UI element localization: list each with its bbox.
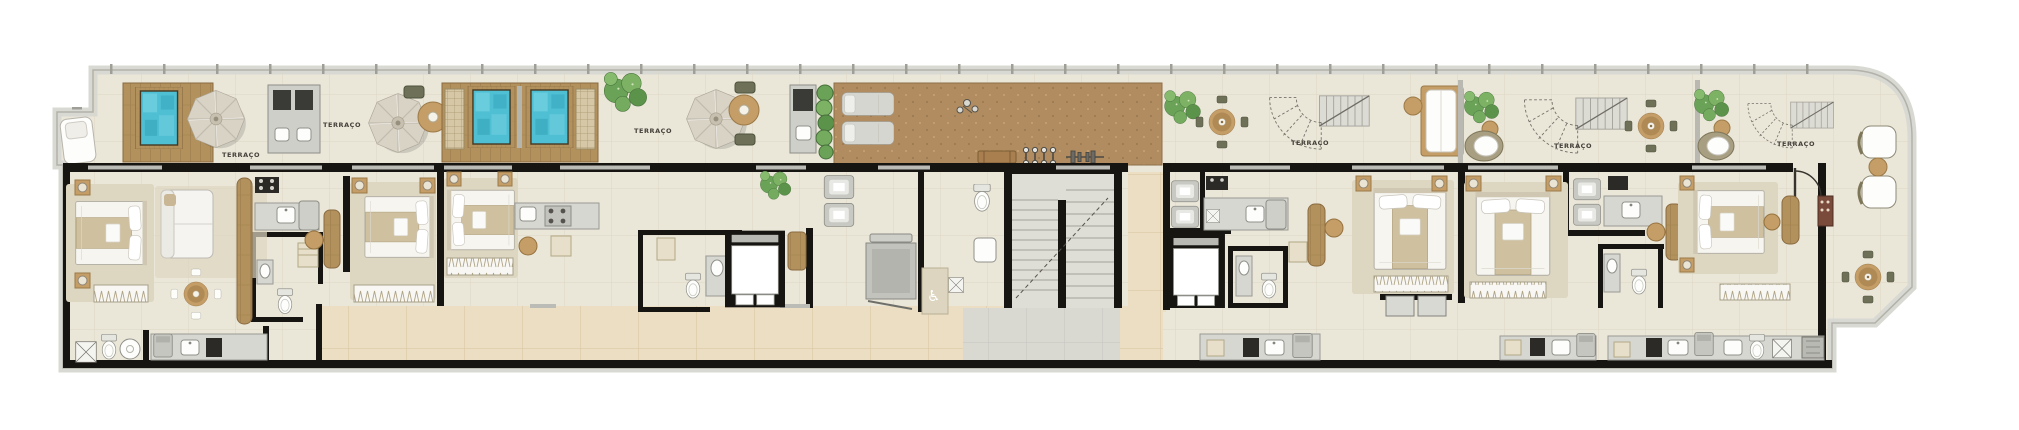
plunge-pool [136, 87, 183, 149]
desk-chair [305, 231, 323, 249]
minibar [1818, 196, 1833, 226]
toilet [1632, 269, 1647, 294]
grill-station [268, 85, 320, 153]
toilet [1262, 273, 1277, 298]
basket [1505, 340, 1521, 355]
desk [1308, 204, 1325, 266]
kitchen [515, 203, 599, 229]
washer [154, 334, 172, 357]
sofa [161, 190, 213, 258]
wood-panel [788, 232, 806, 270]
washer [1577, 333, 1595, 356]
double-bed [76, 201, 147, 265]
deck-mat [445, 89, 464, 149]
plunge-pool [526, 86, 573, 148]
kitchen-sink [1552, 340, 1570, 355]
terrace-chair [735, 134, 755, 145]
toilet [1750, 334, 1765, 359]
duct-shaft [949, 278, 964, 293]
desk-chair [519, 237, 537, 255]
fridge [1266, 200, 1286, 229]
desk-chair [1647, 223, 1665, 241]
floor-plan: ♿ [0, 0, 2019, 430]
pedestal-sink [120, 339, 140, 359]
toilet [974, 184, 990, 211]
wardrobe [447, 258, 513, 275]
basket [1614, 342, 1630, 357]
sun-lounger [842, 93, 894, 116]
lounge-chair-pillow [65, 121, 88, 139]
deck-mat [576, 89, 595, 149]
shower [76, 342, 97, 363]
toilet [686, 273, 701, 298]
elevator [1167, 234, 1225, 308]
double-bed [1693, 190, 1764, 254]
sink [974, 238, 996, 262]
double-bed [1373, 188, 1446, 269]
terrace-label: TERRAÇO [1291, 139, 1329, 147]
toilet [278, 289, 293, 314]
cooktop [1243, 338, 1259, 357]
sideboard [237, 178, 252, 324]
wardrobe [1374, 276, 1448, 292]
grill-station [790, 85, 816, 153]
shower [1773, 339, 1792, 358]
kitchen-strip [1608, 332, 1824, 360]
basket [657, 238, 675, 260]
terrace-label: TERRAÇO [634, 127, 672, 135]
floor-plan-page: ♿ [0, 0, 2019, 430]
double-bed [1476, 192, 1551, 275]
basket [1289, 242, 1307, 262]
plunge-pool [468, 86, 515, 148]
cooktop [1530, 338, 1545, 356]
duct-shaft [1206, 209, 1219, 222]
basket [551, 236, 571, 256]
elevator [725, 231, 785, 308]
washer [1695, 332, 1713, 355]
sun-lounger [842, 122, 894, 145]
basket [1207, 340, 1224, 356]
terrace-label: TERRAÇO [1777, 140, 1815, 148]
sink [1724, 340, 1742, 355]
double-bed [447, 190, 514, 251]
fridge [299, 201, 319, 230]
rattan-armchair [1698, 132, 1734, 160]
toilet [102, 334, 117, 359]
cooktop [1646, 338, 1662, 357]
terrace-label: TERRAÇO [323, 121, 361, 129]
wardrobe [94, 285, 148, 302]
dresser [1782, 196, 1799, 244]
wardrobe [354, 285, 434, 302]
terrace-chair [735, 82, 755, 93]
desk [324, 210, 340, 268]
terrace-divider [1458, 80, 1463, 164]
double-bed [365, 196, 434, 258]
rattan-armchair [1465, 131, 1503, 161]
terrace-label: TERRAÇO [222, 151, 260, 159]
shaft [1418, 296, 1446, 316]
wardrobe [1720, 284, 1790, 300]
service-platform [866, 234, 916, 309]
kitchen-strip [1200, 333, 1320, 360]
desk-chair [1764, 214, 1780, 230]
cooktop [206, 338, 222, 357]
wardrobe [1470, 282, 1546, 298]
terrace-chair [404, 86, 424, 98]
kitchen-strip [1500, 333, 1596, 360]
accessible-wc-icon: ♿ [927, 287, 940, 305]
shaft [1386, 296, 1414, 316]
terrace-label: TERRAÇO [1554, 142, 1592, 150]
washer [1293, 333, 1312, 357]
gym-bench [978, 151, 1016, 163]
desk-chair [1325, 219, 1343, 237]
stair-core [1012, 174, 1114, 308]
